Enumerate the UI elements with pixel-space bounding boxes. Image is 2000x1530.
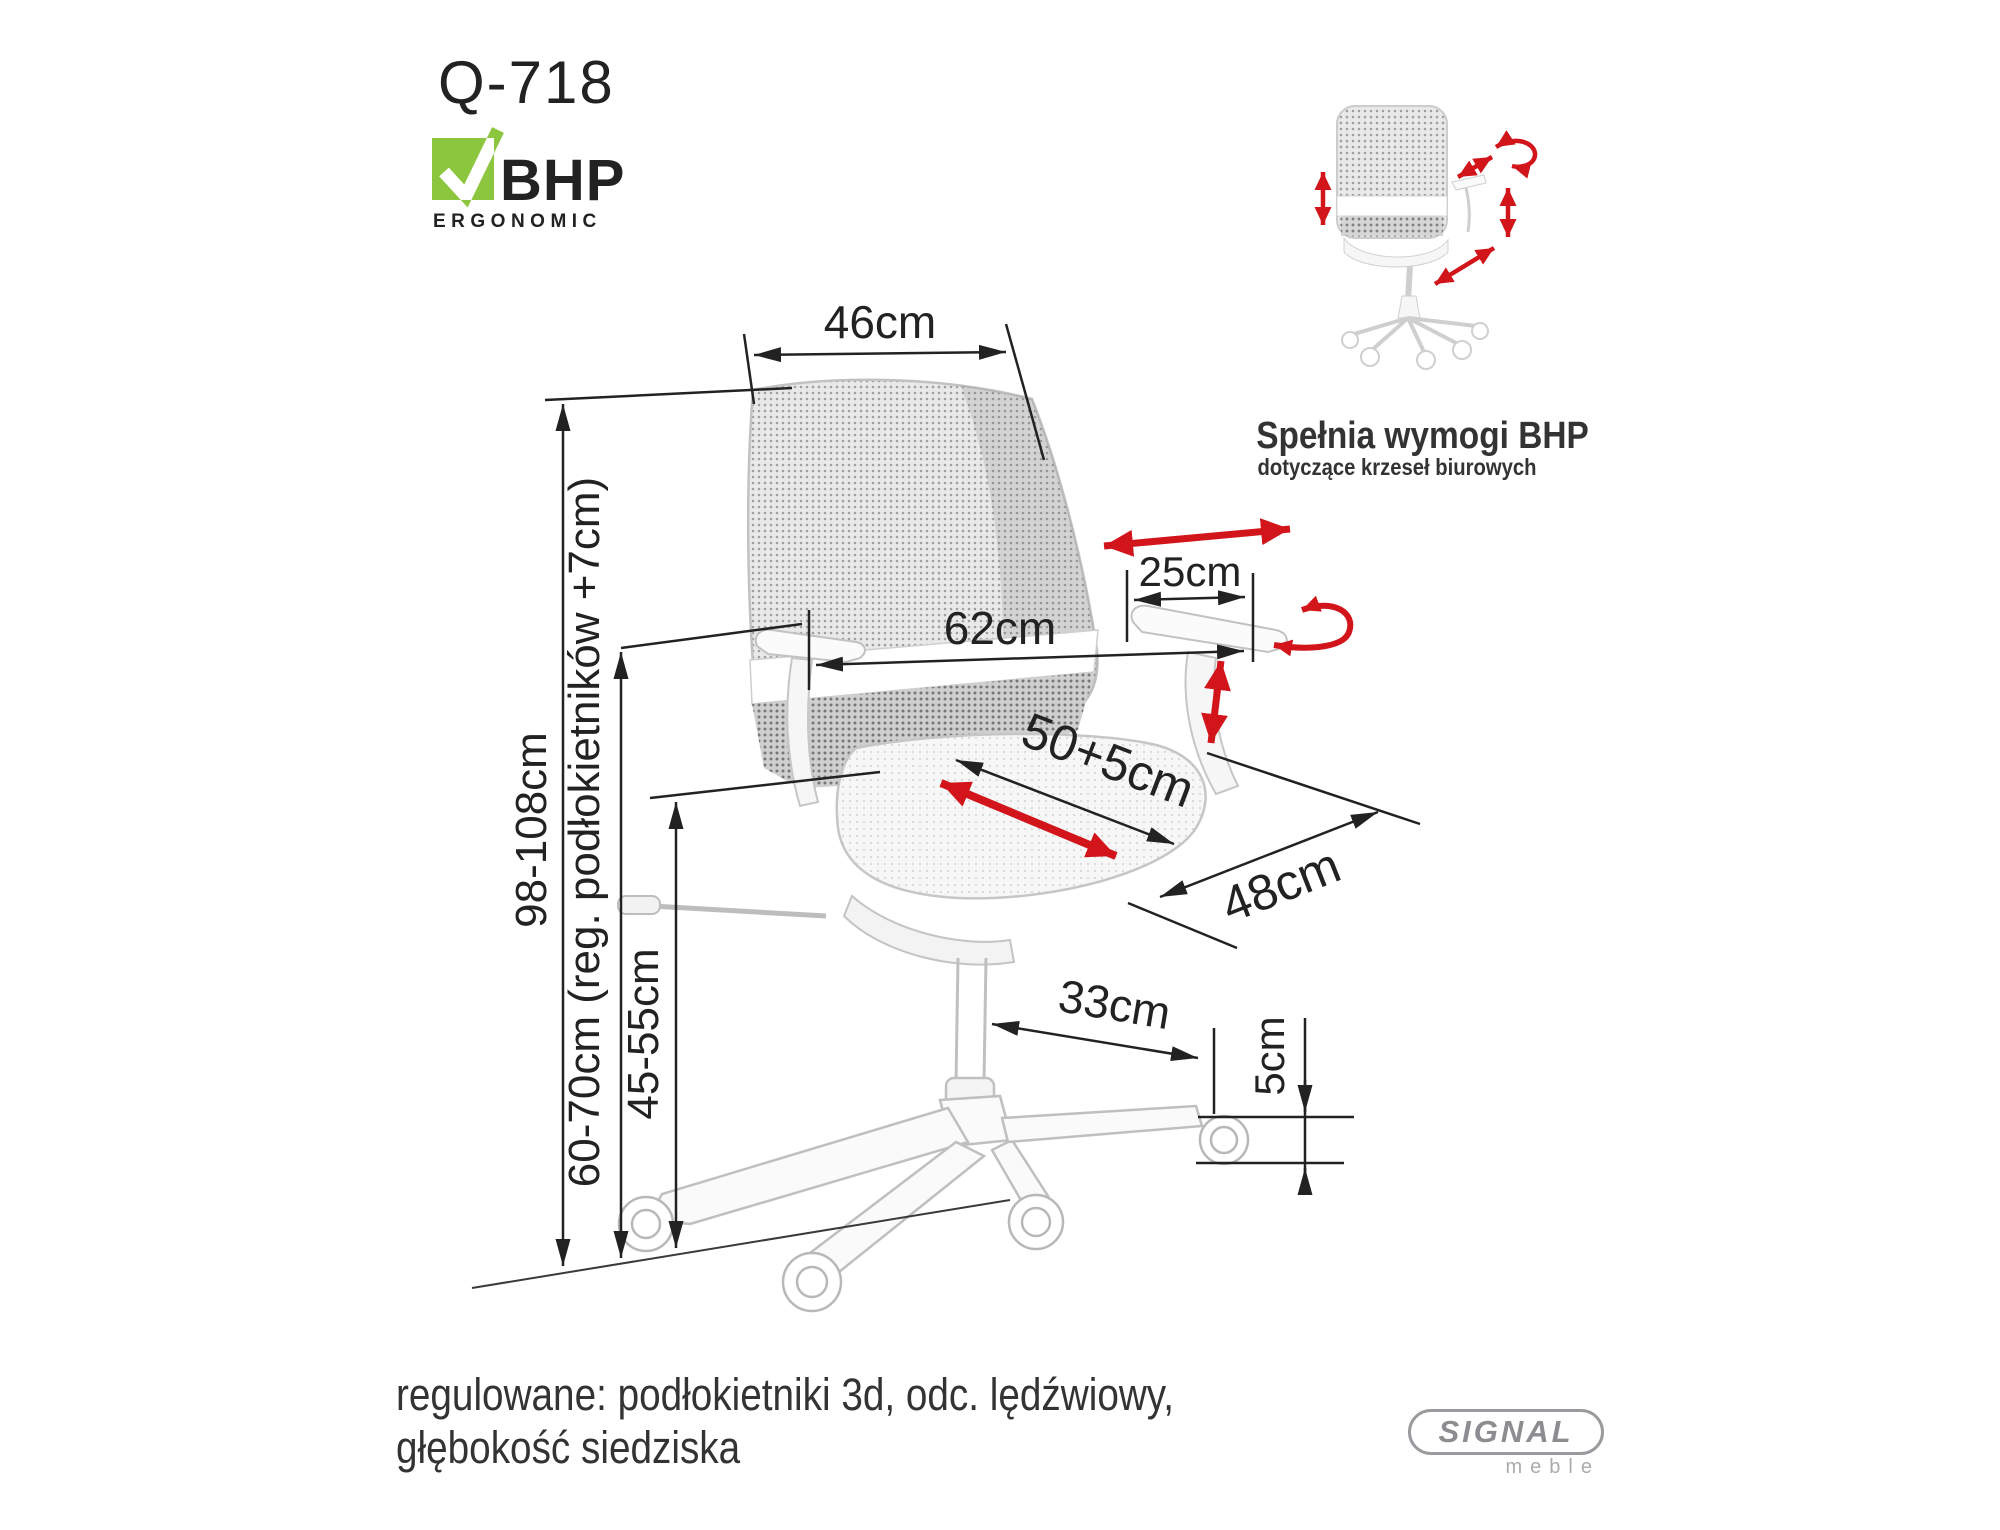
mini-caster-wheel [1472, 323, 1488, 339]
gas-lift [956, 958, 986, 1082]
five-star-base [648, 1096, 1202, 1284]
note-line-1: regulowane: podłokietniki 3d, odc. lędźw… [396, 1368, 1174, 1421]
ground-line [472, 1200, 1010, 1288]
signal-logo-text: SIGNAL [1438, 1414, 1573, 1450]
mini-caster-wheel [1453, 341, 1471, 359]
mini-armrest-rotate-arrow [1496, 141, 1535, 167]
extension-line [744, 334, 754, 404]
signal-logo-subtext: meble [1408, 1456, 1608, 1479]
dimension-arrow [754, 352, 1006, 355]
dim-label-armrest-pad: 25cm [1139, 548, 1242, 595]
dim-label-back-width: 46cm [824, 296, 936, 348]
mini-lumbar-band [1337, 196, 1447, 216]
page: Q-718 BHP ERGONOMIC [0, 0, 2000, 1530]
mini-seat [1344, 238, 1448, 267]
dimension-diagram: 46cm 98-108cm 60-70cm (reg. podłokietnik… [0, 0, 2000, 1530]
dim-label-caster: 5cm [1246, 1016, 1293, 1095]
dim-label-seat-width: 48cm [1214, 837, 1348, 934]
dim-label-seat-height: 45-55cm [619, 948, 668, 1119]
dim-base-arm-33: 33cm [992, 969, 1214, 1114]
base-leg [992, 1140, 1048, 1202]
mini-armrest-slide-arrow [1458, 157, 1492, 177]
mini-lift-cone [1398, 296, 1420, 318]
adjust-lever [652, 906, 826, 916]
mini-caster-wheel [1342, 332, 1358, 348]
mini-armrest-support [1466, 188, 1469, 232]
seat-mechanism [844, 896, 1014, 965]
bhp-badge-title: Spełnia wymogi BHP [1256, 415, 1538, 458]
right-armrest-pad [1131, 606, 1286, 652]
dim-label-overall-width: 62cm [944, 602, 1056, 654]
bhp-badge-subtitle: dotyczące krzeseł biurowych [1256, 454, 1538, 481]
caster-wheel [632, 1210, 660, 1238]
note-line-2: głębokość siedziska [396, 1421, 1174, 1474]
caster-wheel [1022, 1208, 1050, 1236]
lever-paddle [618, 896, 660, 914]
armrest-slide-adjust-arrow [1104, 529, 1290, 546]
mini-caster-wheel [1417, 351, 1435, 369]
signal-logo-pill: SIGNAL [1408, 1409, 1604, 1455]
dim-label-base-arm: 33cm [1055, 969, 1175, 1039]
dim-caster-5: 5cm [1196, 1016, 1354, 1192]
caster-wheel [797, 1267, 827, 1297]
dim-label-total-height: 98-108cm [507, 732, 556, 928]
mini-armrest-pad [1452, 175, 1486, 190]
mini-chair-sketch [1323, 106, 1535, 369]
signal-logo: SIGNAL meble [1408, 1409, 1608, 1479]
caster-wheel [1211, 1127, 1237, 1153]
extension-line [1207, 753, 1420, 824]
extension-line [1128, 903, 1237, 948]
dimension-arrow [1134, 597, 1245, 600]
mini-caster-wheel [1361, 348, 1379, 366]
mini-lower-mesh [1341, 216, 1443, 236]
adjustable-features-note: regulowane: podłokietniki 3d, odc. lędźw… [396, 1368, 1174, 1474]
dim-label-armrest-height: 60-70cm (reg. podłokietników +7cm) [560, 477, 609, 1187]
mini-gas-lift [1408, 266, 1410, 300]
base-leg [1002, 1106, 1202, 1142]
